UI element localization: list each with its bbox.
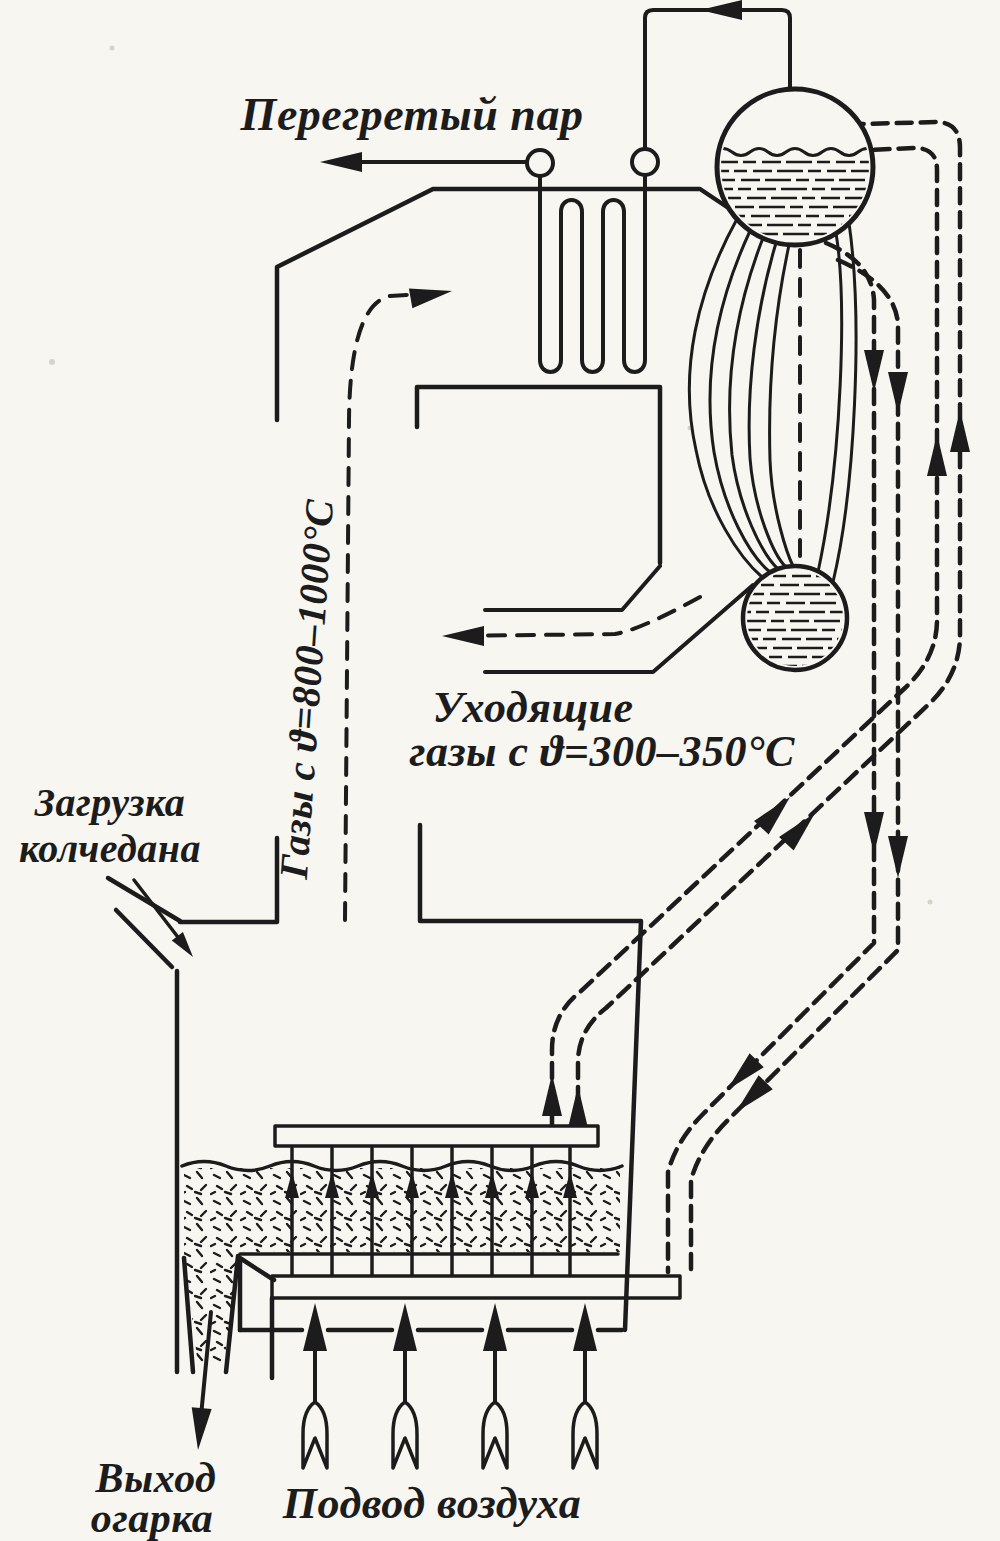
hot-gas-arrow [409,281,454,308]
label-hot-gases: Газы с ϑ=800–1000°C [271,497,343,881]
exit-duct-bottom-wall [485,585,753,672]
furnace-boiler-diagram: Перегретый пар Газы с ϑ=800–1000°C Уходя… [0,0,1000,1541]
hot-gas-flow [345,281,454,920]
label-pyrite-loading-line1: Загрузка [34,780,186,825]
superheater-coil [540,176,645,372]
lower-header-bar [272,1276,680,1298]
label-superheated-steam: Перегретый пар [240,89,584,140]
label-air-supply: Подвод воздуха [282,1479,582,1528]
steam-fitting-right [632,149,658,175]
inner-partition-box [417,387,660,563]
air-arrow [483,1303,507,1468]
steam-drum [712,89,878,245]
lower-drum [742,566,848,670]
label-exit-gases-line2: газы с ϑ=300–350°C [409,727,795,776]
drum-tube-bundle [689,219,856,582]
air-arrow [393,1303,417,1468]
steam-fitting-left [527,150,553,176]
upper-header-bar [275,1126,598,1146]
air-arrow [303,1303,327,1468]
diagram-canvas: Перегретый пар Газы с ϑ=800–1000°C Уходя… [0,0,1000,1541]
label-exit-gases-line1: Уходящие [432,683,633,732]
saturated-steam-arrow [700,0,742,20]
exit-gas-arrow [442,626,484,646]
air-arrow [573,1303,597,1468]
exit-duct-top-wall [485,566,660,610]
label-cinder-outlet-line2: огарка [91,1495,214,1541]
air-box-left [240,1258,274,1378]
exit-gas-flow [442,597,700,646]
steam-outlet-arrow [320,152,362,172]
label-pyrite-loading-line2: колчедана [19,826,201,871]
